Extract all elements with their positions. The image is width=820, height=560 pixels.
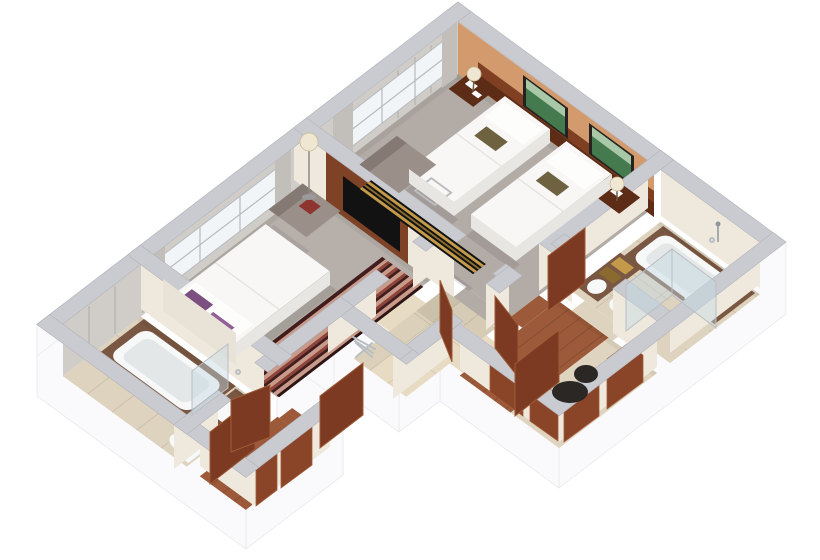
lamp-shade [610,177,624,191]
lamp-base [302,194,316,200]
curtain-panel [442,23,457,88]
lamp-shade [300,133,318,151]
shower-head [716,222,721,227]
chair-seat [552,381,588,403]
floorplan-stage [0,0,820,560]
lamp-shade [467,67,481,81]
floorplan-render [0,0,820,560]
chair-back [574,365,598,383]
lamp-stem [473,80,474,92]
